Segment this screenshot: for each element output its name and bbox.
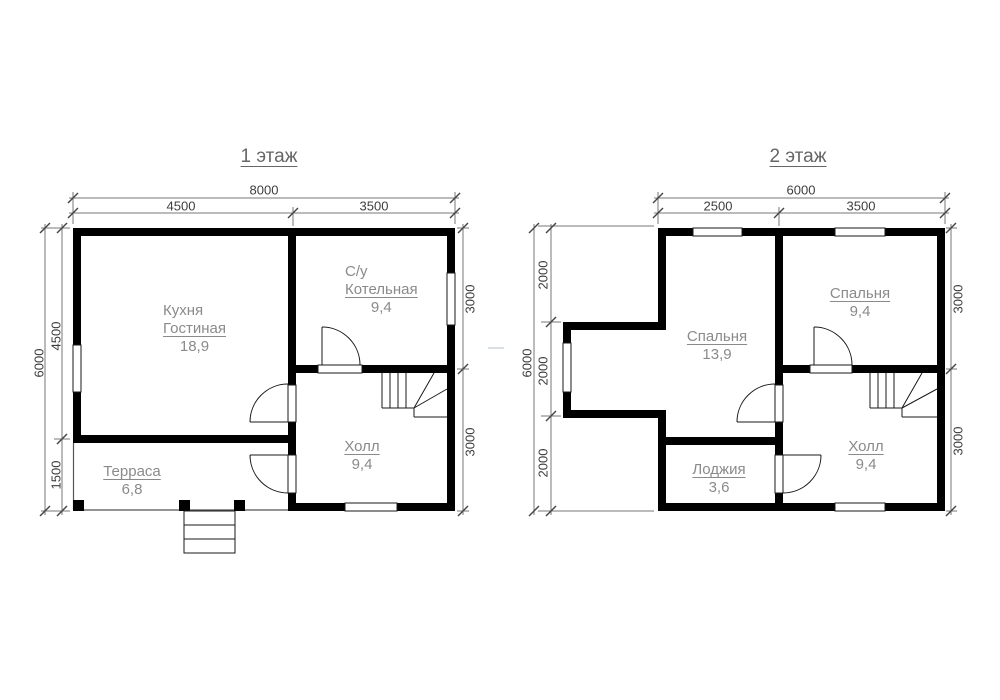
room-boiler-area: 9,4 (345, 299, 418, 317)
room-bedroom-small-area: 9,4 (830, 303, 890, 321)
room-boiler-line1: С/у (345, 263, 418, 281)
f1-dim-width-total: 8000 (250, 183, 279, 198)
f1-window-left (73, 345, 81, 392)
f2-door-bedroom-large-arc (737, 384, 775, 422)
f1-dim-height-b: 1500 (49, 461, 64, 490)
floor1-title: 1 этаж (241, 146, 298, 168)
room-kitchen-living: Кухня Гостиная 18,9 (163, 302, 226, 356)
room-bedroom-large-name: Спальня (687, 328, 747, 346)
room-kitchen-living-line2: Гостиная (163, 320, 226, 338)
room-loggia-name: Лоджия (692, 461, 745, 479)
room-bedroom-small-name: Спальня (830, 285, 890, 303)
f1-window-right (447, 273, 455, 325)
floor2-walls (563, 228, 945, 511)
f2-dim-height-a: 2000 (536, 261, 551, 290)
f2-window-bump (563, 343, 571, 392)
room-terrace: Терраса 6,8 (103, 463, 161, 499)
f2-door-loggia-opening (775, 455, 783, 493)
f2-window-top-left (693, 228, 742, 236)
f1-dim-height-a: 4500 (49, 322, 64, 351)
room-kitchen-living-line1: Кухня (163, 302, 226, 320)
room-boiler: С/у Котельная 9,4 (345, 263, 418, 317)
f1-wall-inner-horizontal (288, 365, 455, 373)
floorplan-drawing (0, 0, 1000, 700)
f2-window-bottom (835, 503, 885, 511)
f2-door-loggia-arc (783, 455, 821, 493)
room-hall-f1-area: 9,4 (344, 456, 379, 474)
f1-dim-height-total: 6000 (32, 349, 47, 378)
f1-dim-width-a: 4500 (167, 199, 196, 214)
f1-window-bottom (345, 503, 397, 511)
floor2-stairs (870, 373, 937, 417)
f1-door-kitchen-arc (250, 384, 288, 422)
room-bedroom-large: Спальня 13,9 (687, 328, 747, 364)
f1-wall-terrace-divider (73, 435, 296, 443)
f1-dim-width-b: 3500 (360, 199, 389, 214)
room-boiler-line2: Котельная (345, 281, 418, 299)
f2-wall-left-upper (658, 228, 666, 330)
f1-dim-right-a: 3000 (463, 285, 478, 314)
f1-door-boiler-opening (318, 365, 362, 373)
f1-wall-left (73, 228, 81, 443)
room-bedroom-large-area: 13,9 (687, 346, 747, 364)
room-hall-f1-name: Холл (344, 438, 379, 456)
room-terrace-name: Терраса (103, 463, 161, 481)
f2-dim-height-b: 2000 (536, 357, 551, 386)
f2-dim-height-total: 6000 (520, 349, 535, 378)
f1-door-terrace-opening (288, 455, 296, 493)
f1-door-terrace-arc (250, 455, 288, 493)
f1-door-boiler-arc (322, 327, 360, 365)
room-hall-f2-area: 9,4 (848, 456, 883, 474)
room-bedroom-small: Спальня 9,4 (830, 285, 890, 321)
room-loggia-area: 3,6 (692, 479, 745, 497)
f2-wall-inner-horizontal (775, 365, 945, 373)
f1-wall-top (73, 228, 455, 236)
room-loggia: Лоджия 3,6 (692, 461, 745, 497)
room-hall-f2: Холл 9,4 (848, 438, 883, 474)
f2-door-bedroom-small-opening (810, 365, 852, 373)
f2-dim-right-a: 3000 (951, 285, 966, 314)
f2-wall-step (563, 322, 666, 330)
f2-dim-right-b: 3000 (951, 427, 966, 456)
f2-wall-loggia-top (658, 437, 783, 445)
f1-terrace-post (73, 500, 84, 511)
f2-window-top-right (835, 228, 885, 236)
f1-terrace-post (234, 500, 245, 511)
room-hall-f1: Холл 9,4 (344, 438, 379, 474)
f2-dim-width-a: 2500 (704, 199, 733, 214)
f2-door-bedroom-large-opening (775, 385, 783, 422)
room-kitchen-living-area: 18,9 (163, 338, 226, 356)
room-hall-f2-name: Холл (848, 438, 883, 456)
floor2-title: 2 этаж (770, 146, 827, 168)
f1-terrace-post (179, 500, 190, 511)
floorplan-page: 1 этаж 2 этаж 8000 4500 3500 6000 4500 1… (0, 0, 1000, 700)
f1-door-kitchen-opening (288, 385, 296, 422)
floor2-doors (737, 327, 852, 493)
room-terrace-area: 6,8 (103, 481, 161, 499)
f2-dim-width-b: 3500 (847, 199, 876, 214)
floor1-stairs (382, 373, 447, 417)
f2-dim-width-total: 6000 (787, 183, 816, 198)
f2-wall-bump-bottom (563, 410, 666, 418)
floor1-entrance-steps (184, 511, 235, 553)
f2-wall-left-lower (658, 410, 666, 511)
f2-dim-height-c: 2000 (536, 449, 551, 478)
f2-wall-bottom (658, 503, 945, 511)
f1-dim-right-b: 3000 (463, 428, 478, 457)
f2-door-bedroom-small-arc (814, 327, 852, 365)
